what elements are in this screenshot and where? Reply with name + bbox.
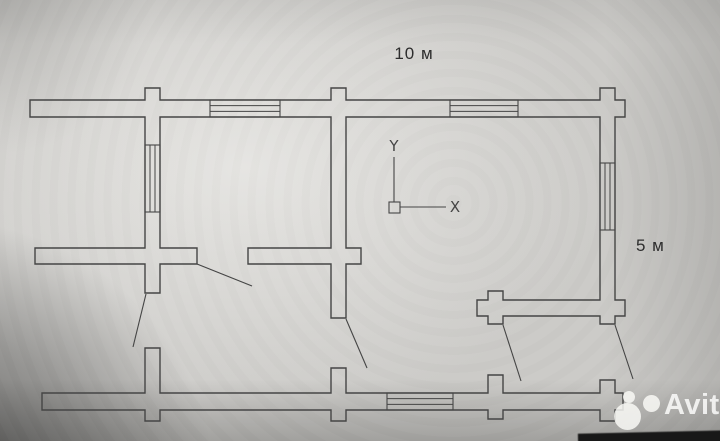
avito-logo-circle-large-icon [614, 403, 641, 430]
avito-logo-circle-small-icon [623, 391, 635, 403]
window-symbol [210, 100, 280, 117]
floorplan-drawing: YX [0, 0, 720, 441]
door-leaf [346, 319, 367, 368]
avito-logo-circle-medium-icon [643, 395, 660, 412]
dimension-label-width: 10 м [384, 44, 444, 64]
ucs-x-axis-label: X [450, 198, 460, 216]
door-leaf [503, 325, 521, 381]
window-symbol [450, 100, 518, 117]
door-leaf [133, 294, 146, 347]
door-leaf [615, 325, 633, 379]
ucs-origin-box-icon [389, 202, 400, 213]
window-symbol [145, 145, 160, 212]
wall-outline [42, 348, 623, 421]
door-leaf [197, 264, 252, 286]
wall-outline [30, 88, 625, 324]
ucs-y-axis-label: Y [388, 137, 399, 155]
dimension-label-height: 5 м [636, 236, 686, 256]
avito-watermark-text: Avito [664, 389, 720, 422]
floorplan-photo: YX 10 м 5 м Avito [0, 0, 720, 441]
avito-watermark: Avito [608, 381, 720, 435]
window-symbol [387, 393, 453, 410]
window-symbol [600, 163, 615, 230]
